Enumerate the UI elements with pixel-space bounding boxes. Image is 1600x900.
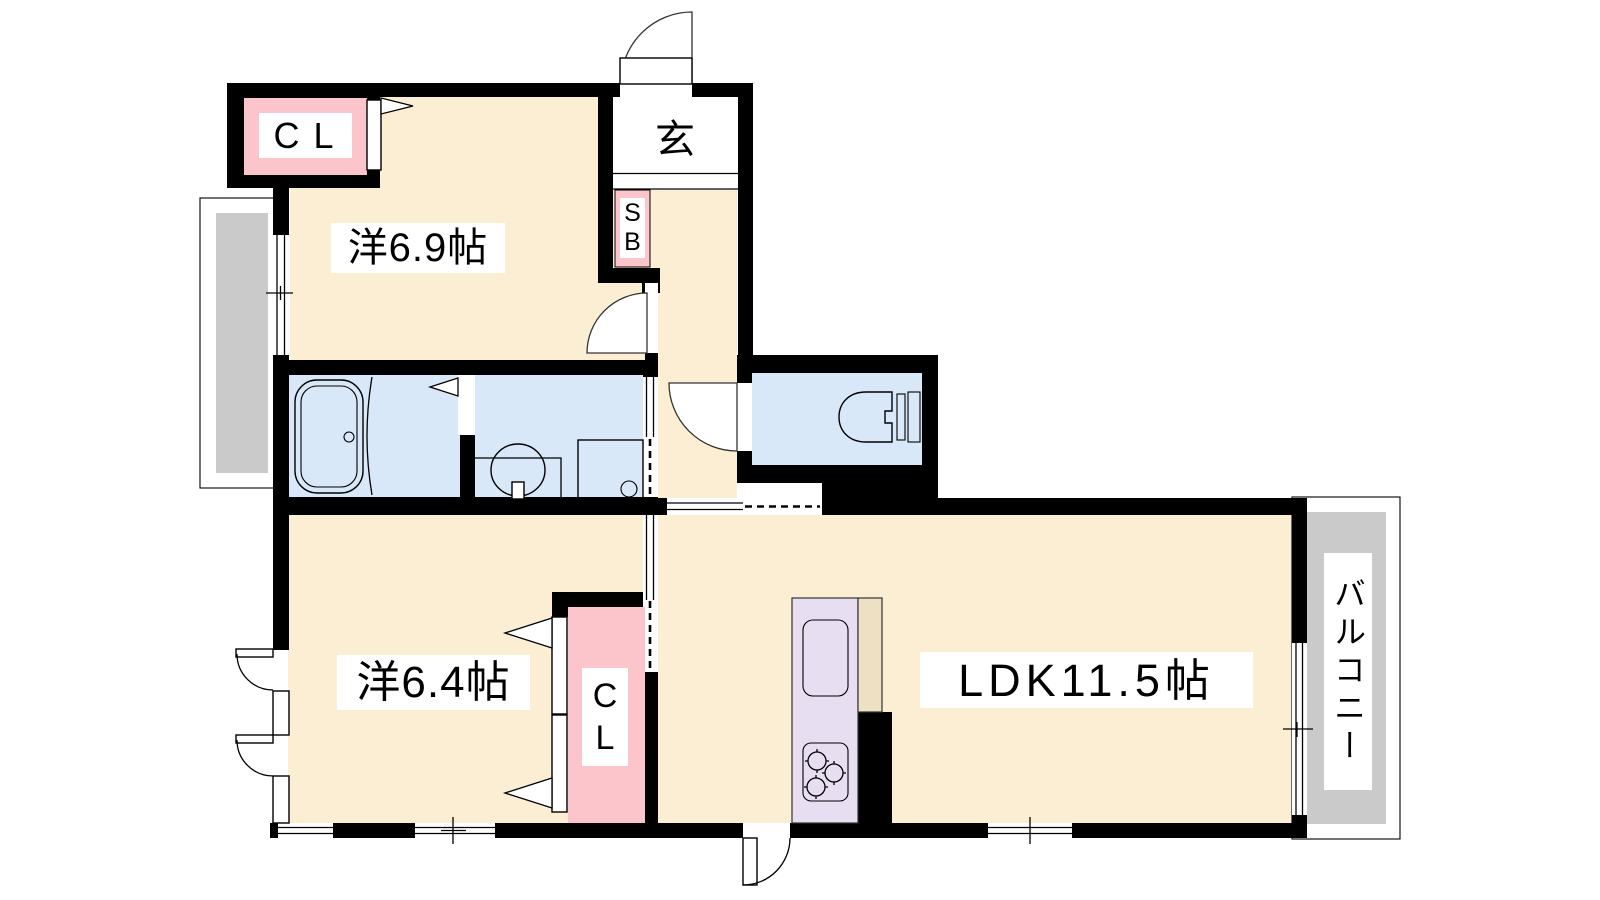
kitchen-cabinet: [858, 598, 882, 712]
ldk-door-leaf: [743, 838, 757, 885]
casement-window-1-swing: [237, 654, 273, 690]
casement-window-2-swing: [237, 740, 273, 776]
toilet-block-sliver: [737, 483, 822, 498]
shoebox-label-s: S: [624, 201, 641, 226]
closet-bottom-door-2: [552, 715, 567, 812]
entry-door-leaf: [620, 58, 692, 84]
genkan-step: [613, 173, 738, 190]
entry-door-gap: [620, 83, 692, 97]
wall-right-top: [738, 83, 753, 355]
sink-pedestal: [512, 482, 524, 499]
balcony-label: バルコニー: [1324, 553, 1372, 790]
kitchen-wall: [857, 712, 892, 823]
window-bottom-a: [278, 823, 333, 838]
wall-left-upper: [273, 188, 289, 235]
wall-ldk-right-lower: [1292, 815, 1307, 838]
room-bottom-label: 洋6.4帖: [337, 655, 530, 710]
room-slider-panel: [643, 515, 658, 600]
terrace-area: [216, 213, 268, 473]
washroom-floor: [475, 375, 643, 497]
wall-left-mid: [273, 515, 289, 650]
closet-top-door-leaf: [367, 100, 381, 170]
shoebox-label: S B: [620, 198, 645, 258]
toilet-door-gap: [737, 383, 752, 451]
floor-plan: CL 玄 S B 洋6.9帖 洋6.4帖 LDK11.5帖 C L バルコニー: [0, 0, 1600, 900]
closet-top-label: CL: [259, 113, 352, 158]
bath-floor: [289, 375, 460, 497]
washroom-slider-gap: [643, 377, 658, 437]
hall-slider-panel: [667, 498, 743, 515]
closet-bottom-label: C L: [582, 668, 628, 766]
wall-genkan-left: [598, 83, 613, 268]
casement-window-2-leaf: [236, 735, 273, 743]
closet-bottom-right-wall: [643, 672, 658, 823]
closet-bottom-corner: [552, 592, 568, 617]
wall-left-glass-2: [273, 776, 289, 823]
wall-left-glass-1: [273, 691, 289, 735]
shoebox-label-b: B: [624, 230, 641, 255]
closet-bottom-label-c: C: [593, 679, 618, 713]
genkan-label: 玄: [650, 117, 700, 163]
ldk-door-gap: [743, 823, 790, 838]
wall-ldk-right-upper: [1292, 498, 1307, 643]
bath-door-gap: [458, 375, 475, 435]
closet-bottom-door-1: [552, 617, 567, 714]
casement-window-1-leaf: [236, 649, 273, 657]
room-top-label: 洋6.9帖: [331, 223, 505, 273]
ldk-label: LDK11.5帖: [920, 652, 1253, 708]
closet-bottom-label-l: L: [596, 721, 615, 755]
